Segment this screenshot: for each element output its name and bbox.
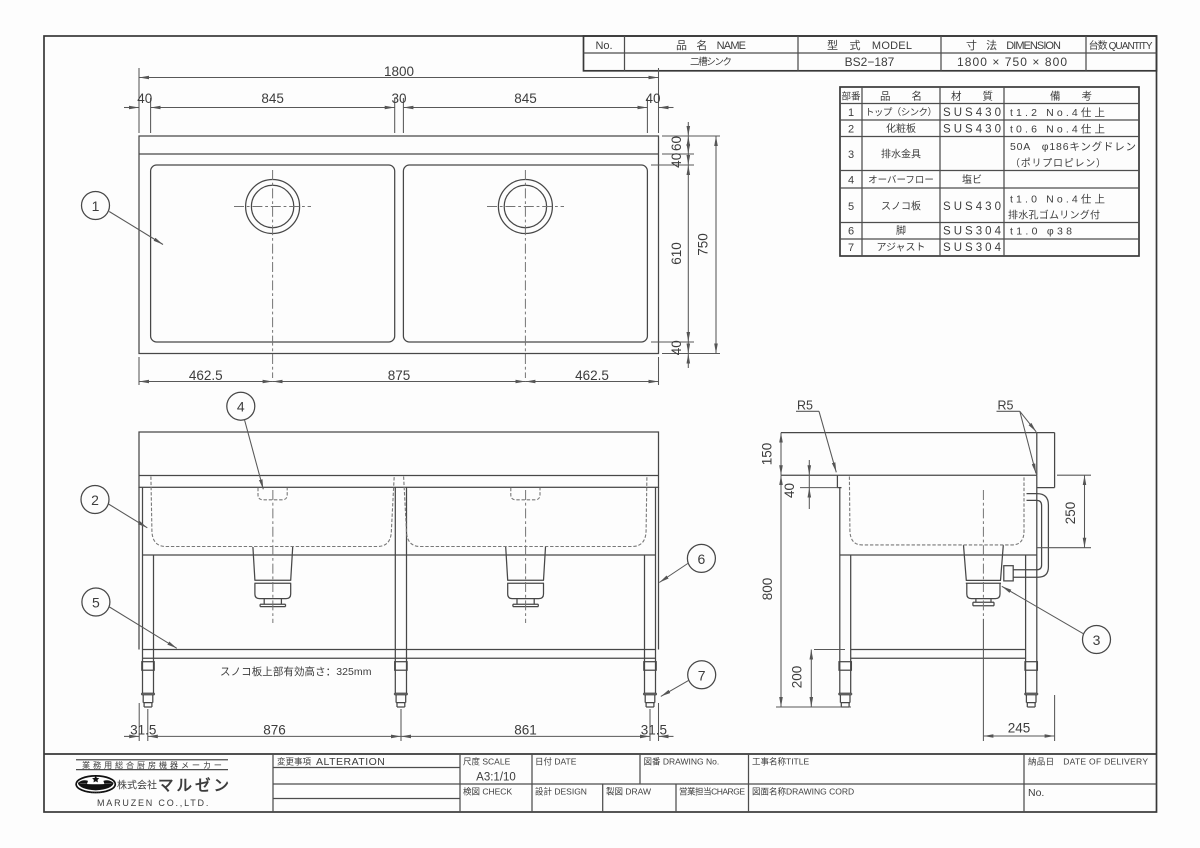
svg-text:40: 40 [645, 91, 660, 106]
svg-text:1800: 1800 [384, 64, 414, 79]
svg-text:50A φ186キングドレン: 50A φ186キングドレン [1010, 140, 1136, 153]
svg-text:二槽シンク: 二槽シンク [690, 56, 732, 68]
svg-text:800: 800 [760, 578, 775, 601]
svg-text:寸 法 DIMENSION: 寸 法 DIMENSION [966, 38, 1061, 52]
svg-text:品 名: 品 名 [880, 90, 922, 103]
svg-text:3: 3 [848, 149, 854, 161]
svg-text:t0.6 No.4仕上: t0.6 No.4仕上 [1010, 123, 1105, 136]
svg-text:備 考: 備 考 [1050, 90, 1092, 103]
svg-text:6: 6 [698, 551, 706, 567]
svg-text:7: 7 [698, 667, 706, 683]
svg-text:R5: R5 [998, 399, 1014, 413]
svg-text:4: 4 [237, 399, 245, 415]
svg-text:製図 DRAW: 製図 DRAW [606, 787, 651, 797]
svg-text:日付 DATE: 日付 DATE [535, 757, 577, 767]
svg-text:トップ（シンク）: トップ（シンク） [865, 107, 937, 119]
svg-text:株式会社: 株式会社 [117, 779, 157, 792]
svg-text:アジャスト: アジャスト [876, 243, 925, 254]
svg-text:462.5: 462.5 [575, 368, 609, 383]
svg-text:31.5: 31.5 [641, 723, 667, 738]
svg-text:塩ビ: 塩ビ [962, 173, 982, 186]
svg-text:スノコ板上部有効高さ：325mm: スノコ板上部有効高さ：325mm [220, 665, 372, 678]
svg-text:462.5: 462.5 [189, 368, 223, 383]
svg-text:材 質: 材 質 [951, 90, 993, 103]
svg-text:1: 1 [848, 107, 854, 119]
svg-text:1: 1 [92, 198, 100, 214]
svg-text:30: 30 [391, 91, 406, 106]
svg-text:7: 7 [848, 242, 854, 254]
svg-text:t1.0 No.4仕上: t1.0 No.4仕上 [1010, 193, 1105, 206]
svg-text:MARUZEN CO.,LTD.: MARUZEN CO.,LTD. [97, 798, 210, 808]
svg-text:部番: 部番 [841, 91, 861, 103]
svg-text:A3:1/10: A3:1/10 [476, 772, 516, 784]
svg-text:No.: No. [1028, 787, 1044, 799]
svg-text:台数 QUANTITY: 台数 QUANTITY [1089, 39, 1153, 52]
svg-text:尺度 SCALE: 尺度 SCALE [463, 757, 511, 767]
svg-text:845: 845 [514, 91, 537, 106]
svg-text:No.: No. [595, 40, 612, 52]
svg-text:BS2−187: BS2−187 [845, 55, 895, 69]
svg-text:40: 40 [137, 91, 152, 106]
svg-text:化粧板: 化粧板 [886, 122, 916, 135]
svg-text:変更事項: 変更事項 [277, 757, 312, 767]
svg-text:750: 750 [696, 233, 711, 256]
svg-text:200: 200 [790, 666, 805, 689]
svg-text:工事名称TITLE: 工事名称TITLE [752, 757, 809, 767]
svg-text:60: 60 [669, 136, 684, 151]
svg-text:4: 4 [848, 175, 854, 187]
svg-text:2: 2 [91, 492, 99, 508]
svg-text:スノコ板: スノコ板 [881, 200, 921, 213]
svg-text:876: 876 [263, 723, 286, 738]
svg-text:納品日 DATE OF DELIVERY: 納品日 DATE OF DELIVERY [1028, 757, 1148, 767]
svg-text:3: 3 [1093, 632, 1101, 648]
svg-text:845: 845 [261, 91, 284, 106]
svg-text:861: 861 [514, 723, 537, 738]
svg-text:品 名 NAME: 品 名 NAME [676, 38, 746, 52]
svg-text:6: 6 [848, 226, 854, 238]
svg-text:250: 250 [1063, 502, 1078, 525]
svg-text:図面名称DRAWING CORD: 図面名称DRAWING CORD [752, 787, 854, 797]
svg-text:型 式 MODEL: 型 式 MODEL [827, 38, 912, 52]
svg-text:排水金具: 排水金具 [881, 148, 921, 161]
svg-text:t1.2 No.4仕上: t1.2 No.4仕上 [1010, 106, 1105, 119]
svg-text:設計 DESIGN: 設計 DESIGN [535, 787, 587, 797]
svg-text:オーバーフロー: オーバーフロー [868, 175, 934, 186]
svg-text:245: 245 [1008, 721, 1031, 736]
svg-text:ALTERATION: ALTERATION [316, 756, 385, 768]
svg-text:（ポリプロピレン）: （ポリプロピレン） [1010, 158, 1106, 170]
svg-text:営業担当CHARGE: 営業担当CHARGE [679, 787, 745, 797]
svg-text:t1.0 φ38: t1.0 φ38 [1010, 226, 1072, 238]
svg-text:2: 2 [848, 124, 854, 136]
svg-text:脚: 脚 [896, 224, 906, 237]
svg-text:図番 DRAWING No.: 図番 DRAWING No. [644, 757, 720, 767]
svg-text:40: 40 [669, 340, 684, 355]
svg-text:875: 875 [388, 368, 411, 383]
svg-text:1800 × 750 × 800: 1800 × 750 × 800 [957, 55, 1067, 69]
svg-text:40: 40 [782, 483, 797, 498]
svg-text:40: 40 [669, 153, 684, 168]
svg-text:150: 150 [760, 443, 775, 466]
svg-text:31.5: 31.5 [130, 723, 156, 738]
svg-text:R5: R5 [797, 399, 813, 413]
svg-text:5: 5 [848, 201, 854, 213]
svg-text:5: 5 [92, 595, 100, 611]
svg-text:610: 610 [669, 242, 684, 265]
svg-text:排水孔ゴムリング付: 排水孔ゴムリング付 [1008, 209, 1100, 222]
svg-text:検図 CHECK: 検図 CHECK [463, 787, 512, 797]
